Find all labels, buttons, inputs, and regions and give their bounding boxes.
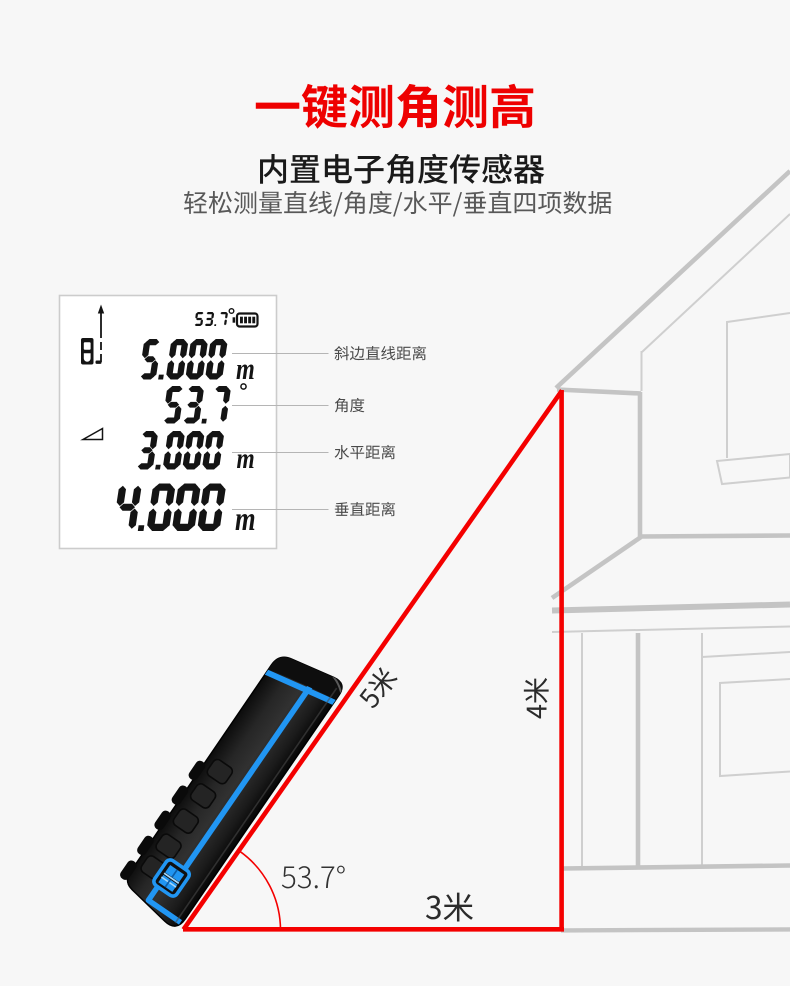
svg-text:m: m [235, 500, 256, 538]
svg-text:m: m [237, 441, 255, 474]
svg-text:m: m [236, 352, 255, 387]
